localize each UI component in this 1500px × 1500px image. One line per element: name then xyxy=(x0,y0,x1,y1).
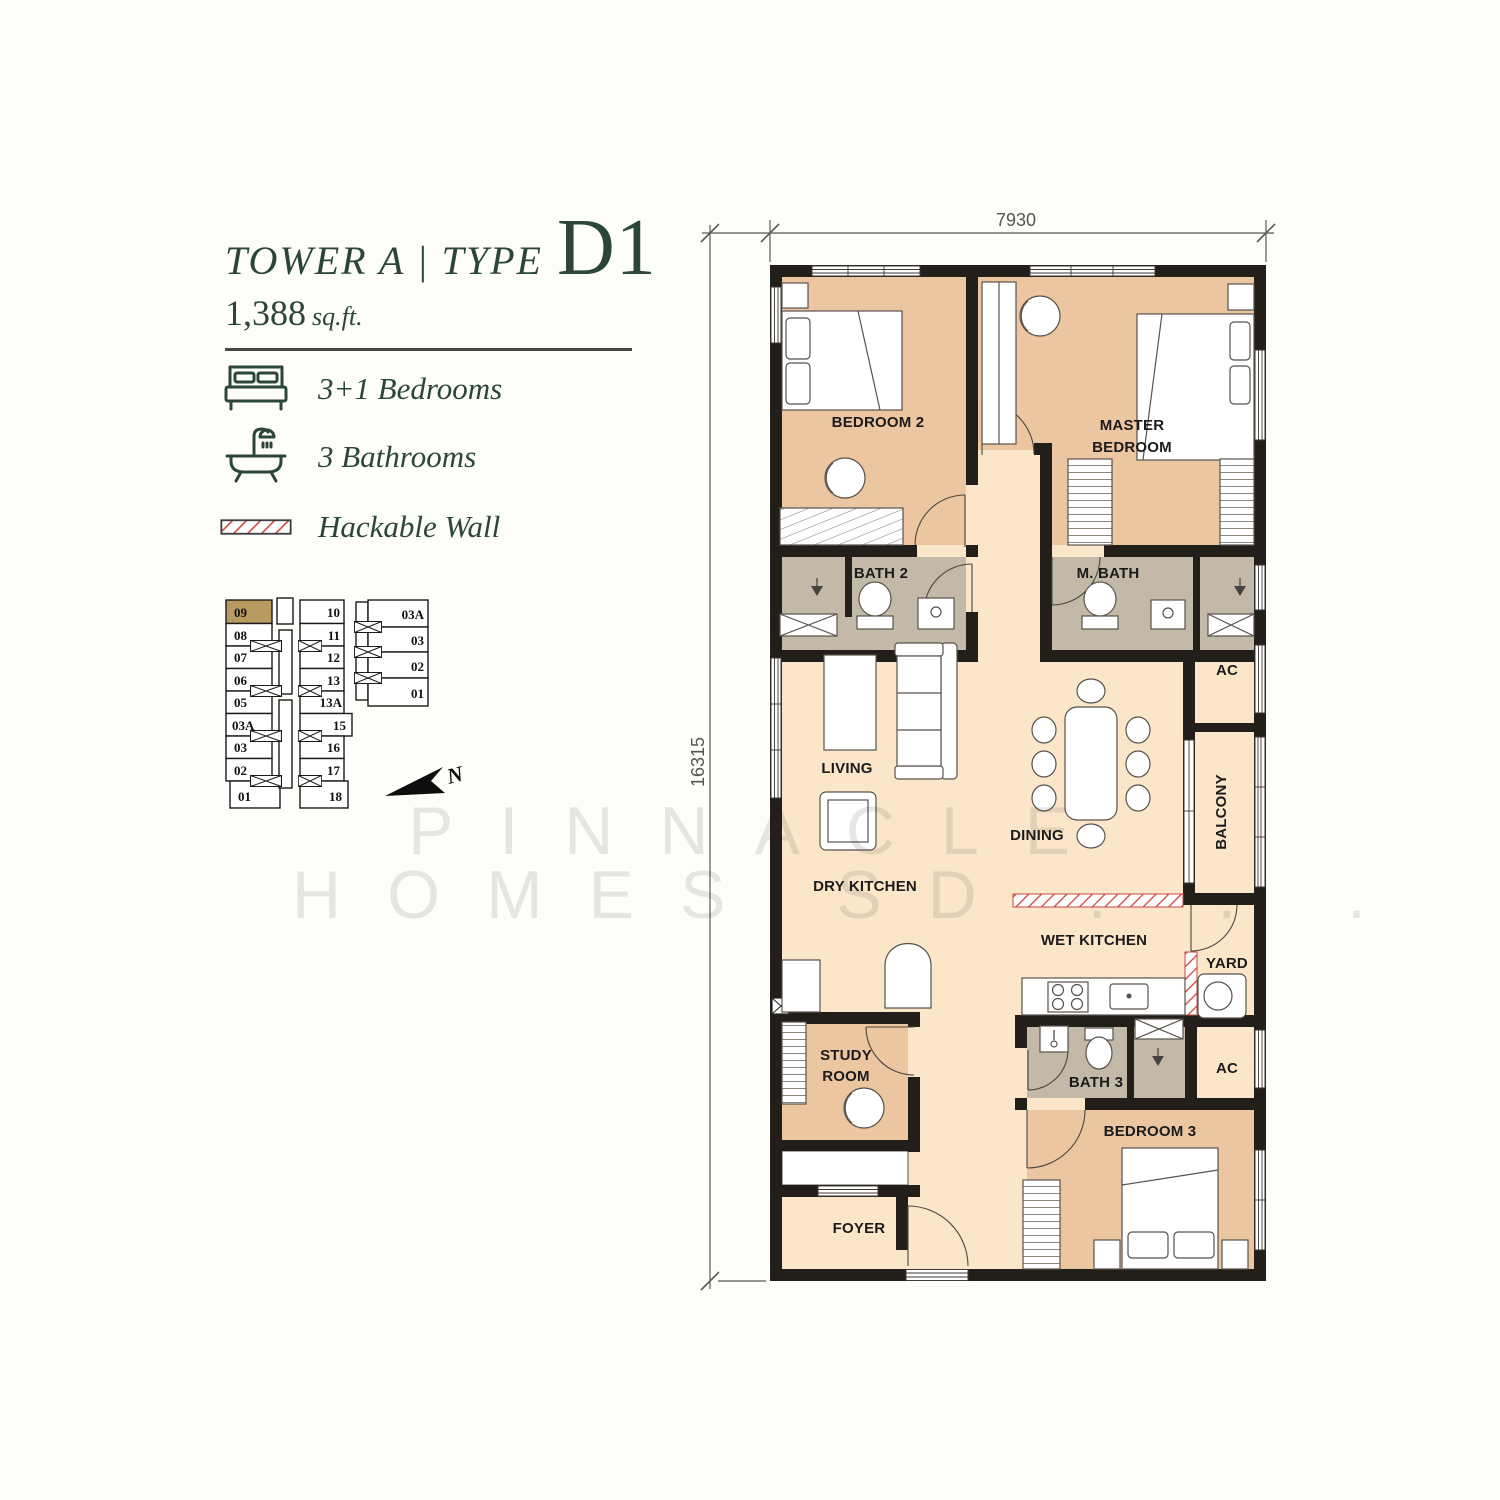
bookshelf xyxy=(782,1022,806,1104)
bed-icon xyxy=(220,361,292,417)
dining-table xyxy=(1065,707,1117,820)
vanity-sink xyxy=(918,598,954,629)
armchair-seat xyxy=(828,800,868,842)
pillow xyxy=(786,318,810,359)
room-label-foyer: FOYER xyxy=(833,1220,886,1237)
side-table xyxy=(1222,1240,1248,1269)
round-chair xyxy=(825,458,865,498)
side-table xyxy=(1094,1240,1120,1269)
wardrobe xyxy=(1023,1180,1060,1269)
sofa-seat xyxy=(897,656,941,766)
wardrobe xyxy=(1220,459,1254,545)
sofa-arm xyxy=(895,643,943,656)
room-label-living: LIVING xyxy=(821,760,872,777)
dining-chair xyxy=(1032,717,1056,743)
unit-area: 1,388sq.ft. xyxy=(225,292,657,334)
vanity-sink xyxy=(1151,600,1185,629)
laundry-basin xyxy=(1204,982,1232,1010)
pillow xyxy=(1230,322,1250,360)
room-label-balcony: BALCONY xyxy=(1213,774,1230,850)
key-plan-unit-label: 03 xyxy=(234,740,248,755)
divider-rule xyxy=(225,348,632,351)
key-plan-unit-label: 10 xyxy=(327,605,340,620)
key-plan-unit-label: 02 xyxy=(411,659,424,674)
toilet-tank xyxy=(1082,616,1118,629)
kitchen-counter xyxy=(1022,978,1185,1015)
room-label-ac-top: AC xyxy=(1216,662,1238,679)
key-plan: 09 08 07 06 05 03A 03 02 01 10 11 12 13 … xyxy=(218,580,490,830)
coffee-table xyxy=(824,655,876,750)
bathtub-icon xyxy=(220,424,292,490)
toilet xyxy=(1086,1037,1112,1069)
wardrobe xyxy=(780,508,903,545)
dining-chair xyxy=(1032,751,1056,777)
wet-kitchen-furniture xyxy=(1022,978,1185,1015)
legend-row-bedrooms: 3+1 Bedrooms xyxy=(220,356,502,422)
dining-chair xyxy=(1126,717,1150,743)
dining-chair xyxy=(1077,679,1105,703)
dining-chair xyxy=(1126,751,1150,777)
room-label-master1: MASTER xyxy=(1100,417,1165,434)
north-arrow-icon: N xyxy=(385,760,467,796)
title-type-code: D1 xyxy=(557,214,657,282)
room-label-bedroom2: BEDROOM 2 xyxy=(832,414,925,431)
counter xyxy=(782,960,820,1012)
toilet-tank xyxy=(857,616,893,629)
dimension-width: 7930 xyxy=(996,210,1036,230)
toilet xyxy=(859,582,891,616)
pillow xyxy=(1128,1232,1168,1258)
key-plan-unit-label: 13A xyxy=(320,695,343,710)
dining-chair xyxy=(1032,785,1056,811)
dining-chair xyxy=(1126,785,1150,811)
room-label-yard: YARD xyxy=(1206,955,1248,972)
key-plan-unit-label: 13 xyxy=(327,673,341,688)
round-chair xyxy=(844,1088,884,1128)
dimension-height: 16315 xyxy=(688,737,708,787)
key-plan-unit-label: 09 xyxy=(234,605,248,620)
pillow xyxy=(786,363,810,404)
key-plan-unit-label: 05 xyxy=(234,695,248,710)
sofa-arm xyxy=(895,766,943,779)
room-label-mbath: M. BATH xyxy=(1077,565,1140,582)
room-label-dry-kitchen: DRY KITCHEN xyxy=(813,878,917,895)
legend-label-hackable: Hackable Wall xyxy=(318,509,500,545)
sofa-back xyxy=(941,643,957,779)
title-block: TOWER A | TYPE D1 1,388sq.ft. xyxy=(225,214,657,351)
key-plan-unit-label: 15 xyxy=(333,718,347,733)
area-unit: sq.ft. xyxy=(312,302,363,331)
key-plan-unit-label: 03A xyxy=(232,718,255,733)
key-plan-unit-label: 06 xyxy=(234,673,248,688)
key-plan-unit-label: 17 xyxy=(327,763,341,778)
round-chair xyxy=(1020,296,1060,336)
room-label-bath2: BATH 2 xyxy=(854,565,908,582)
key-plan-unit-label: 18 xyxy=(329,789,343,804)
area-value: 1,388 xyxy=(225,293,306,333)
page-title: TOWER A | TYPE D1 xyxy=(225,214,657,284)
legend-row-bathrooms: 3 Bathrooms xyxy=(220,424,476,490)
room-label-master2: BEDROOM xyxy=(1092,439,1172,456)
room-label-study1: STUDY xyxy=(820,1047,872,1064)
hackable-wall-icon xyxy=(220,517,292,537)
room-label-study2: ROOM xyxy=(822,1068,869,1085)
key-plan-unit-label: 11 xyxy=(328,628,340,643)
key-plan-unit-label: 03A xyxy=(402,607,425,622)
key-plan-unit-label: 08 xyxy=(234,628,248,643)
key-plan-unit-label: 07 xyxy=(234,650,248,665)
pillow xyxy=(1174,1232,1214,1258)
room-label-dining: DINING xyxy=(1010,827,1064,844)
title-prefix: TOWER A | TYPE xyxy=(225,237,543,284)
key-plan-unit-label: 16 xyxy=(327,740,341,755)
wardrobe xyxy=(1068,459,1112,545)
side-table xyxy=(782,283,808,308)
island-unit xyxy=(885,944,931,1009)
room-label-bath3: BATH 3 xyxy=(1069,1074,1123,1091)
toilet xyxy=(1084,582,1116,616)
legend-row-hackable: Hackable Wall xyxy=(220,494,500,560)
room-label-wet-kitchen: WET KITCHEN xyxy=(1041,932,1147,949)
key-plan-unit-label: 01 xyxy=(411,686,424,701)
legend-label-bathrooms: 3 Bathrooms xyxy=(318,439,476,475)
pillow xyxy=(1230,366,1250,404)
floor-plan: 7930 16315 xyxy=(688,190,1302,1312)
side-table xyxy=(1228,284,1254,310)
key-plan-unit-label: 03 xyxy=(411,633,425,648)
key-plan-unit-label: 01 xyxy=(238,789,251,804)
yard-fixtures xyxy=(1198,974,1246,1018)
north-label: N xyxy=(443,760,467,789)
room-label-bedroom3: BEDROOM 3 xyxy=(1104,1123,1197,1140)
dining-chair xyxy=(1077,824,1105,848)
key-plan-unit-label: 12 xyxy=(327,650,340,665)
legend-label-bedrooms: 3+1 Bedrooms xyxy=(318,371,502,407)
room-label-ac-bottom: AC xyxy=(1216,1060,1238,1077)
key-plan-unit-label: 02 xyxy=(234,763,247,778)
